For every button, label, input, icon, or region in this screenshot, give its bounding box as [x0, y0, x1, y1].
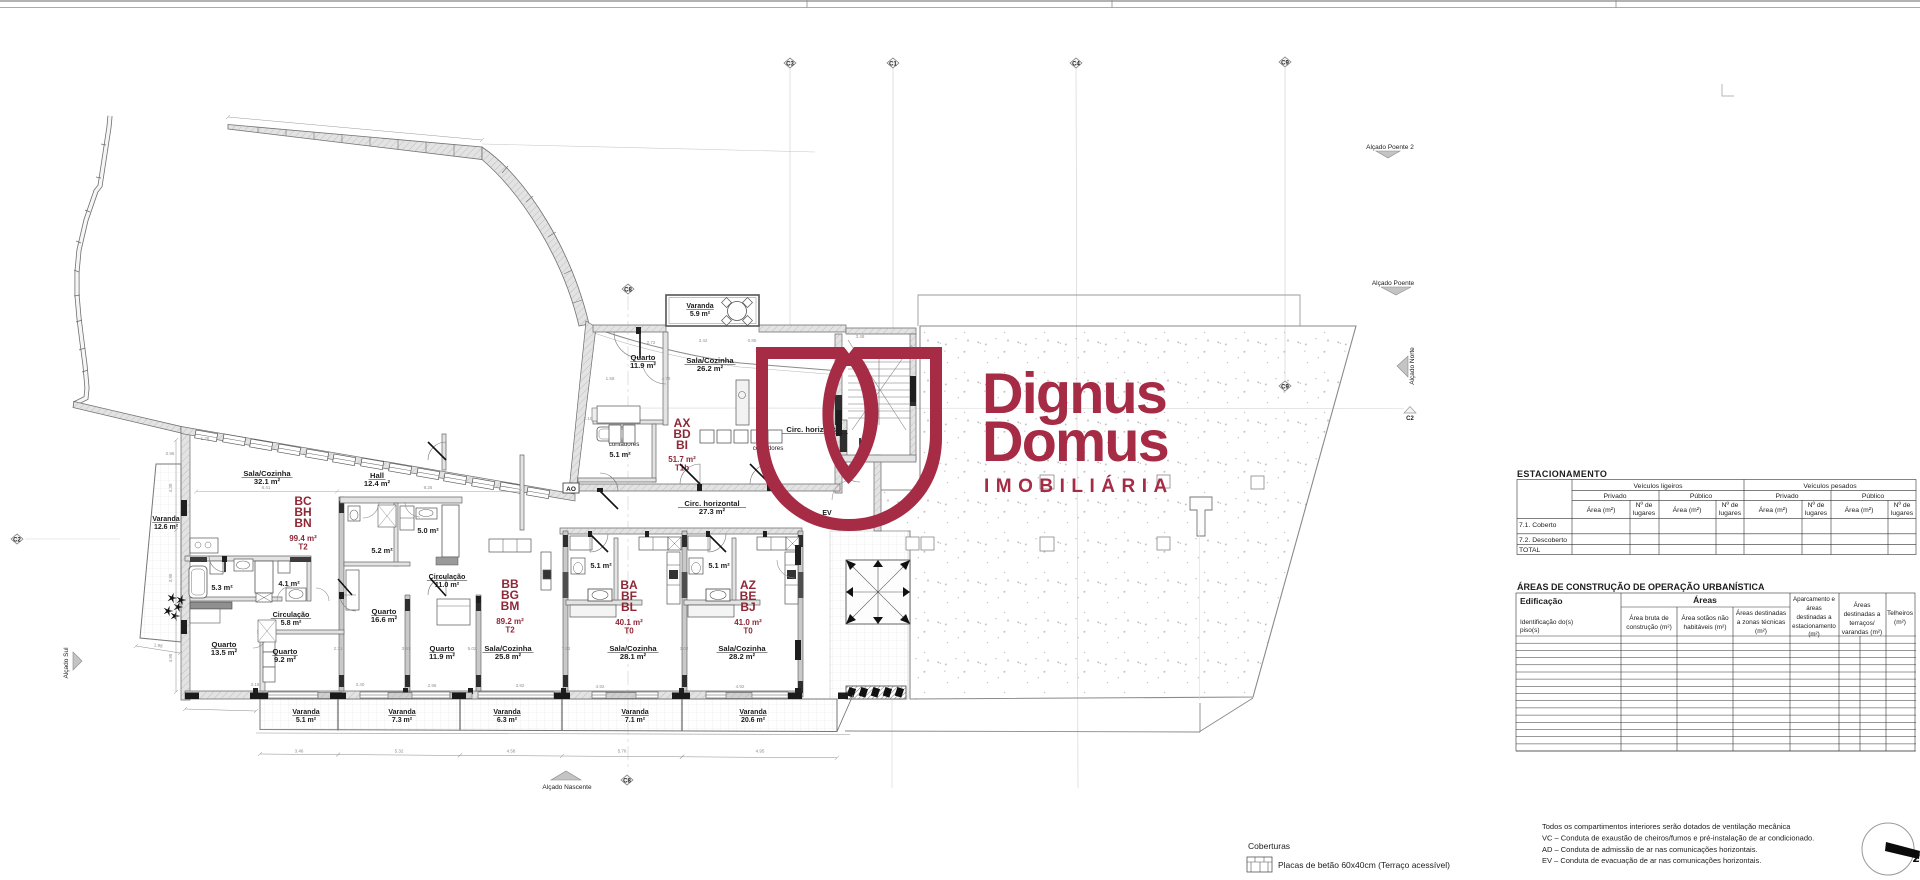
- svg-text:4.92: 4.92: [596, 684, 605, 689]
- svg-text:Varanda: Varanda: [388, 709, 415, 716]
- svg-text:Nº de: Nº de: [1894, 502, 1911, 509]
- svg-text:lugares: lugares: [1805, 510, 1828, 517]
- svg-text:C3: C3: [786, 62, 794, 68]
- svg-text:3.48: 3.48: [856, 334, 865, 339]
- svg-text:Coberturas: Coberturas: [1248, 841, 1290, 851]
- svg-text:Área (m²): Área (m²): [1845, 505, 1874, 514]
- svg-text:Edificação: Edificação: [1520, 596, 1563, 606]
- svg-text:BJ: BJ: [740, 600, 755, 614]
- svg-text:8.25: 8.25: [424, 485, 433, 490]
- svg-text:2.10: 2.10: [584, 416, 593, 421]
- svg-text:estacionamento: estacionamento: [1792, 623, 1836, 630]
- svg-text:4.58: 4.58: [507, 749, 516, 754]
- svg-text:ÁREAS DE CONSTRUÇÃO DE OPERAÇÃ: ÁREAS DE CONSTRUÇÃO DE OPERAÇÃO URBANÍST…: [1517, 582, 1765, 592]
- svg-text:lugares: lugares: [1633, 510, 1656, 517]
- svg-text:AO: AO: [566, 486, 576, 493]
- svg-text:5.0 m²: 5.0 m²: [417, 526, 439, 535]
- svg-text:z: z: [1912, 849, 1920, 865]
- svg-text:Todos os compartimentos interi: Todos os compartimentos interiores serão…: [1542, 822, 1791, 831]
- svg-text:varandas (m²): varandas (m²): [1842, 629, 1882, 636]
- svg-text:(m²): (m²): [1808, 631, 1819, 638]
- svg-text:9.2 m²: 9.2 m²: [274, 655, 296, 664]
- svg-text:Áreas destinadas: Áreas destinadas: [1736, 608, 1787, 617]
- svg-text:7.02: 7.02: [562, 646, 571, 651]
- svg-text:Veículos ligeiros: Veículos ligeiros: [1633, 483, 1683, 490]
- svg-text:Privado: Privado: [1775, 493, 1798, 500]
- svg-text:20.6 m²: 20.6 m²: [741, 717, 766, 724]
- svg-text:BN: BN: [294, 516, 311, 530]
- svg-text:Alçado Sul: Alçado Sul: [63, 647, 70, 679]
- svg-text:destinadas a: destinadas a: [1844, 611, 1881, 618]
- svg-text:3.92: 3.92: [516, 683, 525, 688]
- svg-text:Privado: Privado: [1603, 493, 1626, 500]
- svg-text:Varanda: Varanda: [493, 709, 520, 716]
- svg-text:7.3 m²: 7.3 m²: [392, 717, 413, 724]
- svg-text:Identificação do(s): Identificação do(s): [1520, 619, 1573, 626]
- svg-text:Alçado Nascente: Alçado Nascente: [542, 784, 592, 791]
- svg-text:1.98: 1.98: [154, 642, 164, 648]
- svg-text:T2: T2: [298, 543, 308, 552]
- svg-text:lugares: lugares: [1891, 510, 1914, 517]
- svg-text:VC – Conduta de exaustão de ch: VC – Conduta de exaustão de cheiros/fumo…: [1542, 834, 1814, 843]
- svg-text:áreas: áreas: [1806, 605, 1821, 612]
- svg-text:construção (m²): construção (m²): [1626, 624, 1672, 631]
- svg-text:Placas de betão 60x40cm (Terra: Placas de betão 60x40cm (Terraço acessív…: [1278, 860, 1450, 870]
- svg-text:T0: T0: [624, 627, 634, 636]
- svg-text:Varanda: Varanda: [152, 516, 179, 523]
- svg-text:Alçado Poente 2: Alçado Poente 2: [1366, 144, 1414, 151]
- svg-text:C2: C2: [13, 538, 21, 544]
- svg-text:Nº de: Nº de: [1722, 502, 1739, 509]
- svg-text:Alçado Poente: Alçado Poente: [1372, 280, 1415, 287]
- svg-text:5.3 m²: 5.3 m²: [211, 583, 233, 592]
- svg-text:lugares: lugares: [1719, 510, 1742, 517]
- svg-text:11.9 m²: 11.9 m²: [630, 361, 656, 370]
- svg-text:ESTACIONAMENTO: ESTACIONAMENTO: [1517, 469, 1607, 479]
- svg-text:3.95: 3.95: [168, 573, 173, 582]
- svg-text:Varanda: Varanda: [621, 709, 648, 716]
- svg-text:Varanda: Varanda: [686, 303, 713, 310]
- svg-text:Veículos pesados: Veículos pesados: [1803, 483, 1857, 490]
- svg-text:C8: C8: [624, 288, 632, 294]
- svg-text:28.2 m²: 28.2 m²: [729, 652, 756, 661]
- svg-text:TOTAL: TOTAL: [1519, 547, 1540, 554]
- svg-text:Alçado Norte: Alçado Norte: [1409, 347, 1416, 385]
- svg-text:3.19: 3.19: [251, 682, 260, 687]
- svg-text:5.1 m²: 5.1 m²: [590, 561, 612, 570]
- svg-text:Áreas: Áreas: [1693, 595, 1717, 605]
- svg-text:4.1 m²: 4.1 m²: [278, 579, 300, 588]
- svg-text:Área (m²): Área (m²): [1587, 505, 1616, 514]
- svg-text:4.95: 4.95: [168, 653, 173, 662]
- svg-text:AD – Conduta de admissão de ar: AD – Conduta de admissão de ar nas comun…: [1542, 845, 1758, 854]
- svg-text:Área (m²): Área (m²): [1673, 505, 1702, 514]
- svg-text:C9: C9: [1281, 61, 1289, 67]
- svg-text:25.8 m²: 25.8 m²: [495, 652, 522, 661]
- svg-text:7.2. Descoberto: 7.2. Descoberto: [1519, 537, 1567, 544]
- svg-text:C8: C8: [623, 779, 631, 785]
- svg-text:16.6 m²: 16.6 m²: [371, 615, 398, 624]
- svg-text:BI: BI: [676, 438, 688, 452]
- svg-text:0.96: 0.96: [166, 451, 175, 456]
- svg-text:12.6 m²: 12.6 m²: [154, 524, 179, 531]
- svg-text:0.85: 0.85: [748, 338, 757, 343]
- svg-text:Público: Público: [1862, 493, 1885, 500]
- svg-text:27.3 m²: 27.3 m²: [699, 507, 726, 516]
- svg-text:Nº de: Nº de: [1636, 502, 1653, 509]
- svg-text:5.76: 5.76: [618, 749, 627, 754]
- svg-text:C1: C1: [889, 62, 897, 68]
- svg-text:T0: T0: [743, 627, 753, 636]
- svg-text:3.02: 3.02: [680, 646, 689, 651]
- svg-text:Áreas: Áreas: [1854, 600, 1872, 609]
- svg-text:Área sotãos não: Área sotãos não: [1681, 613, 1729, 622]
- svg-text:6.3 m²: 6.3 m²: [497, 717, 518, 724]
- svg-text:2.31: 2.31: [334, 646, 343, 651]
- svg-text:Varanda: Varanda: [739, 709, 766, 716]
- svg-text:26.2 m²: 26.2 m²: [697, 364, 724, 373]
- svg-text:Nº de: Nº de: [1808, 502, 1825, 509]
- svg-text:Área bruta de: Área bruta de: [1629, 613, 1669, 622]
- svg-text:destinadas a: destinadas a: [1796, 614, 1832, 621]
- svg-text:4.30: 4.30: [168, 483, 173, 492]
- svg-text:5.9 m²: 5.9 m²: [690, 311, 711, 318]
- svg-text:Aparcamento e: Aparcamento e: [1793, 596, 1836, 603]
- svg-text:T2: T2: [505, 626, 515, 635]
- svg-text:5.1 m²: 5.1 m²: [609, 450, 631, 459]
- svg-text:Varanda: Varanda: [292, 709, 319, 716]
- svg-text:7.1. Coberto: 7.1. Coberto: [1519, 522, 1557, 529]
- svg-text:28.1 m²: 28.1 m²: [620, 652, 647, 661]
- svg-text:a zonas técnicas: a zonas técnicas: [1737, 619, 1786, 626]
- svg-text:BM: BM: [501, 599, 520, 613]
- svg-text:Área (m²): Área (m²): [1759, 505, 1788, 514]
- svg-text:2.96: 2.96: [428, 683, 437, 688]
- svg-text:2.72: 2.72: [647, 340, 656, 345]
- svg-text:habitáveis (m²): habitáveis (m²): [1684, 624, 1727, 631]
- svg-text:BL: BL: [621, 600, 637, 614]
- svg-text:5.8 m²: 5.8 m²: [281, 618, 302, 627]
- svg-text:1.26: 1.26: [201, 436, 210, 441]
- svg-text:5.02: 5.02: [468, 646, 477, 651]
- svg-text:5.32: 5.32: [395, 749, 404, 754]
- svg-text:Público: Público: [1690, 493, 1713, 500]
- svg-text:11.9 m²: 11.9 m²: [429, 652, 455, 661]
- svg-text:C2: C2: [1406, 416, 1414, 422]
- svg-text:4.95: 4.95: [756, 749, 765, 754]
- svg-text:3.46: 3.46: [295, 749, 304, 754]
- svg-text:5.1 m²: 5.1 m²: [708, 561, 730, 570]
- svg-text:4.78: 4.78: [662, 376, 671, 381]
- svg-text:5.2 m²: 5.2 m²: [371, 546, 393, 555]
- svg-text:C4: C4: [1072, 62, 1080, 68]
- svg-text:3.40: 3.40: [356, 682, 365, 687]
- svg-text:(m²): (m²): [1755, 628, 1767, 635]
- svg-text:3.81: 3.81: [402, 646, 411, 651]
- svg-text:terraços/: terraços/: [1849, 620, 1874, 627]
- svg-text:6.41: 6.41: [262, 485, 271, 490]
- svg-text:(m²): (m²): [1894, 619, 1906, 626]
- svg-text:7.1 m²: 7.1 m²: [625, 717, 646, 724]
- svg-text:4.92: 4.92: [736, 684, 745, 689]
- svg-text:IMOBILIÁRIA: IMOBILIÁRIA: [984, 475, 1174, 497]
- svg-text:Telheiros: Telheiros: [1887, 610, 1914, 617]
- svg-text:13.5 m²: 13.5 m²: [211, 648, 238, 657]
- svg-text:piso(s): piso(s): [1520, 627, 1540, 634]
- svg-text:12.4 m²: 12.4 m²: [364, 479, 391, 488]
- svg-text:EV – Conduta de evacuação de a: EV – Conduta de evacuação de ar nas comu…: [1542, 856, 1761, 865]
- svg-text:Domus: Domus: [982, 410, 1168, 474]
- svg-text:5.1 m²: 5.1 m²: [296, 717, 317, 724]
- svg-text:1.58: 1.58: [606, 376, 615, 381]
- svg-text:3.42: 3.42: [699, 338, 708, 343]
